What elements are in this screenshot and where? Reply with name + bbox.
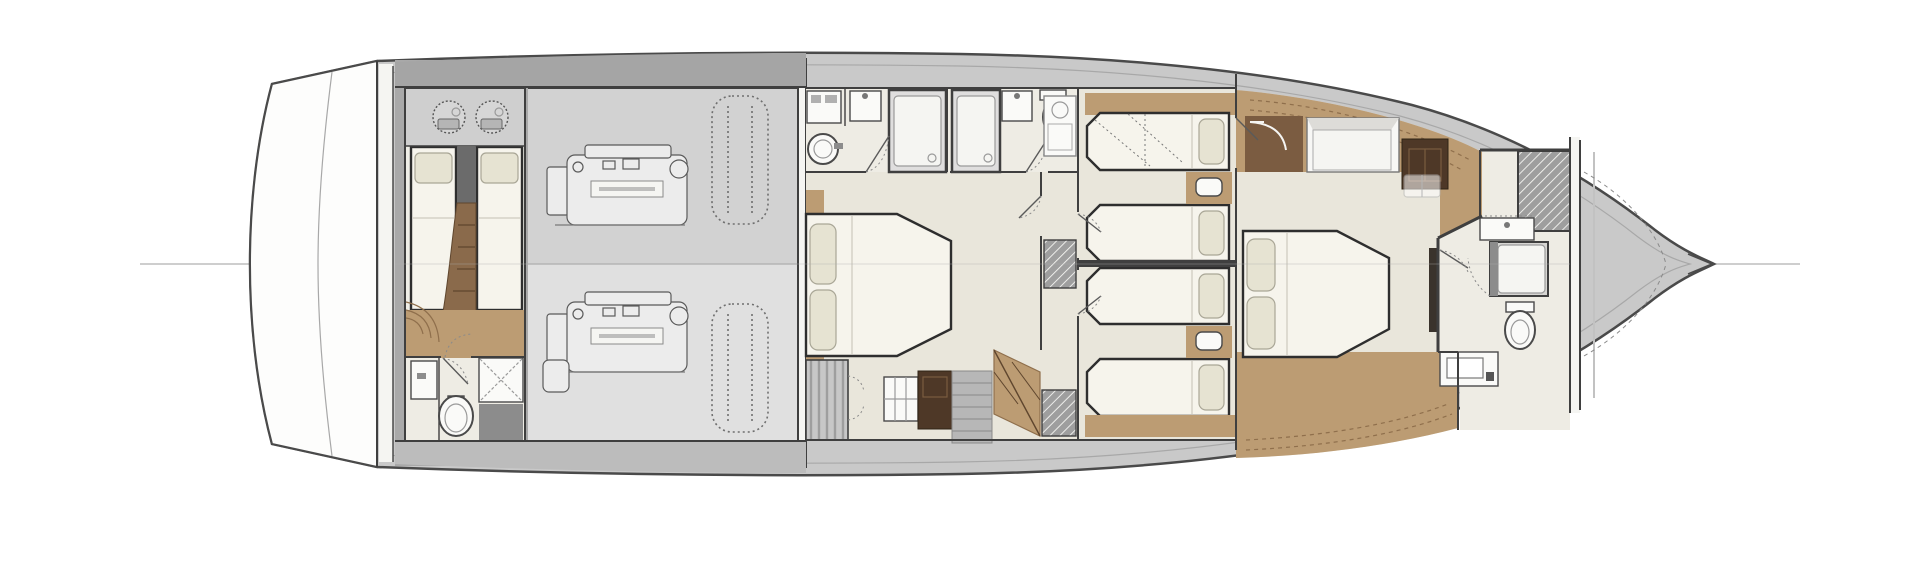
crew-sink-faucet bbox=[417, 373, 426, 379]
vip-bathroom bbox=[806, 88, 1078, 172]
wood-shelf-top bbox=[1085, 93, 1235, 115]
wood-shelf-bottom bbox=[1085, 415, 1235, 437]
crew-cabin bbox=[405, 88, 525, 443]
crew-berth-starboard bbox=[477, 147, 522, 310]
crew-bathroom bbox=[405, 357, 525, 443]
swim-platform bbox=[250, 61, 377, 467]
vip-shower bbox=[889, 90, 946, 172]
master-toilet bbox=[1505, 302, 1535, 349]
master-tv-panel bbox=[1429, 248, 1437, 332]
staircase-hatch bbox=[1042, 390, 1076, 436]
guest-berth-3 bbox=[1087, 268, 1229, 324]
guest-shower bbox=[952, 90, 1000, 172]
guest-berth-1 bbox=[1087, 113, 1229, 170]
vip-berth bbox=[806, 214, 951, 356]
master-wood-floor-bottom bbox=[1236, 352, 1458, 458]
crew-toilet bbox=[439, 396, 473, 436]
master-berth bbox=[1243, 231, 1389, 357]
vip-table bbox=[884, 377, 918, 421]
engine-room bbox=[528, 88, 798, 442]
companionway-steps bbox=[952, 371, 992, 443]
muffler bbox=[543, 360, 569, 392]
master-entry-walkway bbox=[1245, 116, 1303, 172]
master-stool bbox=[1404, 175, 1440, 197]
crew-bath-locker bbox=[479, 404, 523, 442]
crew-shower bbox=[479, 358, 523, 402]
master-sink-counter bbox=[1480, 216, 1534, 240]
crew-nightstand bbox=[457, 147, 476, 203]
nightstand-port bbox=[1186, 172, 1232, 204]
vip-nightstand-fwd bbox=[806, 190, 824, 214]
crew-round-seat-port bbox=[433, 101, 465, 133]
transom-bulkhead bbox=[377, 61, 393, 467]
nightstand-starboard bbox=[1186, 326, 1232, 358]
crew-round-seat-starboard bbox=[476, 101, 508, 133]
yacht-lower-deck-plan bbox=[0, 0, 1920, 561]
guest-berth-4 bbox=[1087, 359, 1229, 416]
yacht-floorplan-page bbox=[0, 0, 1920, 561]
master-dresser bbox=[1307, 118, 1399, 172]
guest-berth-2 bbox=[1087, 205, 1229, 261]
crew-wood-sole bbox=[405, 302, 525, 358]
master-sink-counter-aft bbox=[1440, 352, 1498, 386]
crew-sink bbox=[411, 361, 437, 399]
washer-unit bbox=[1044, 96, 1076, 156]
